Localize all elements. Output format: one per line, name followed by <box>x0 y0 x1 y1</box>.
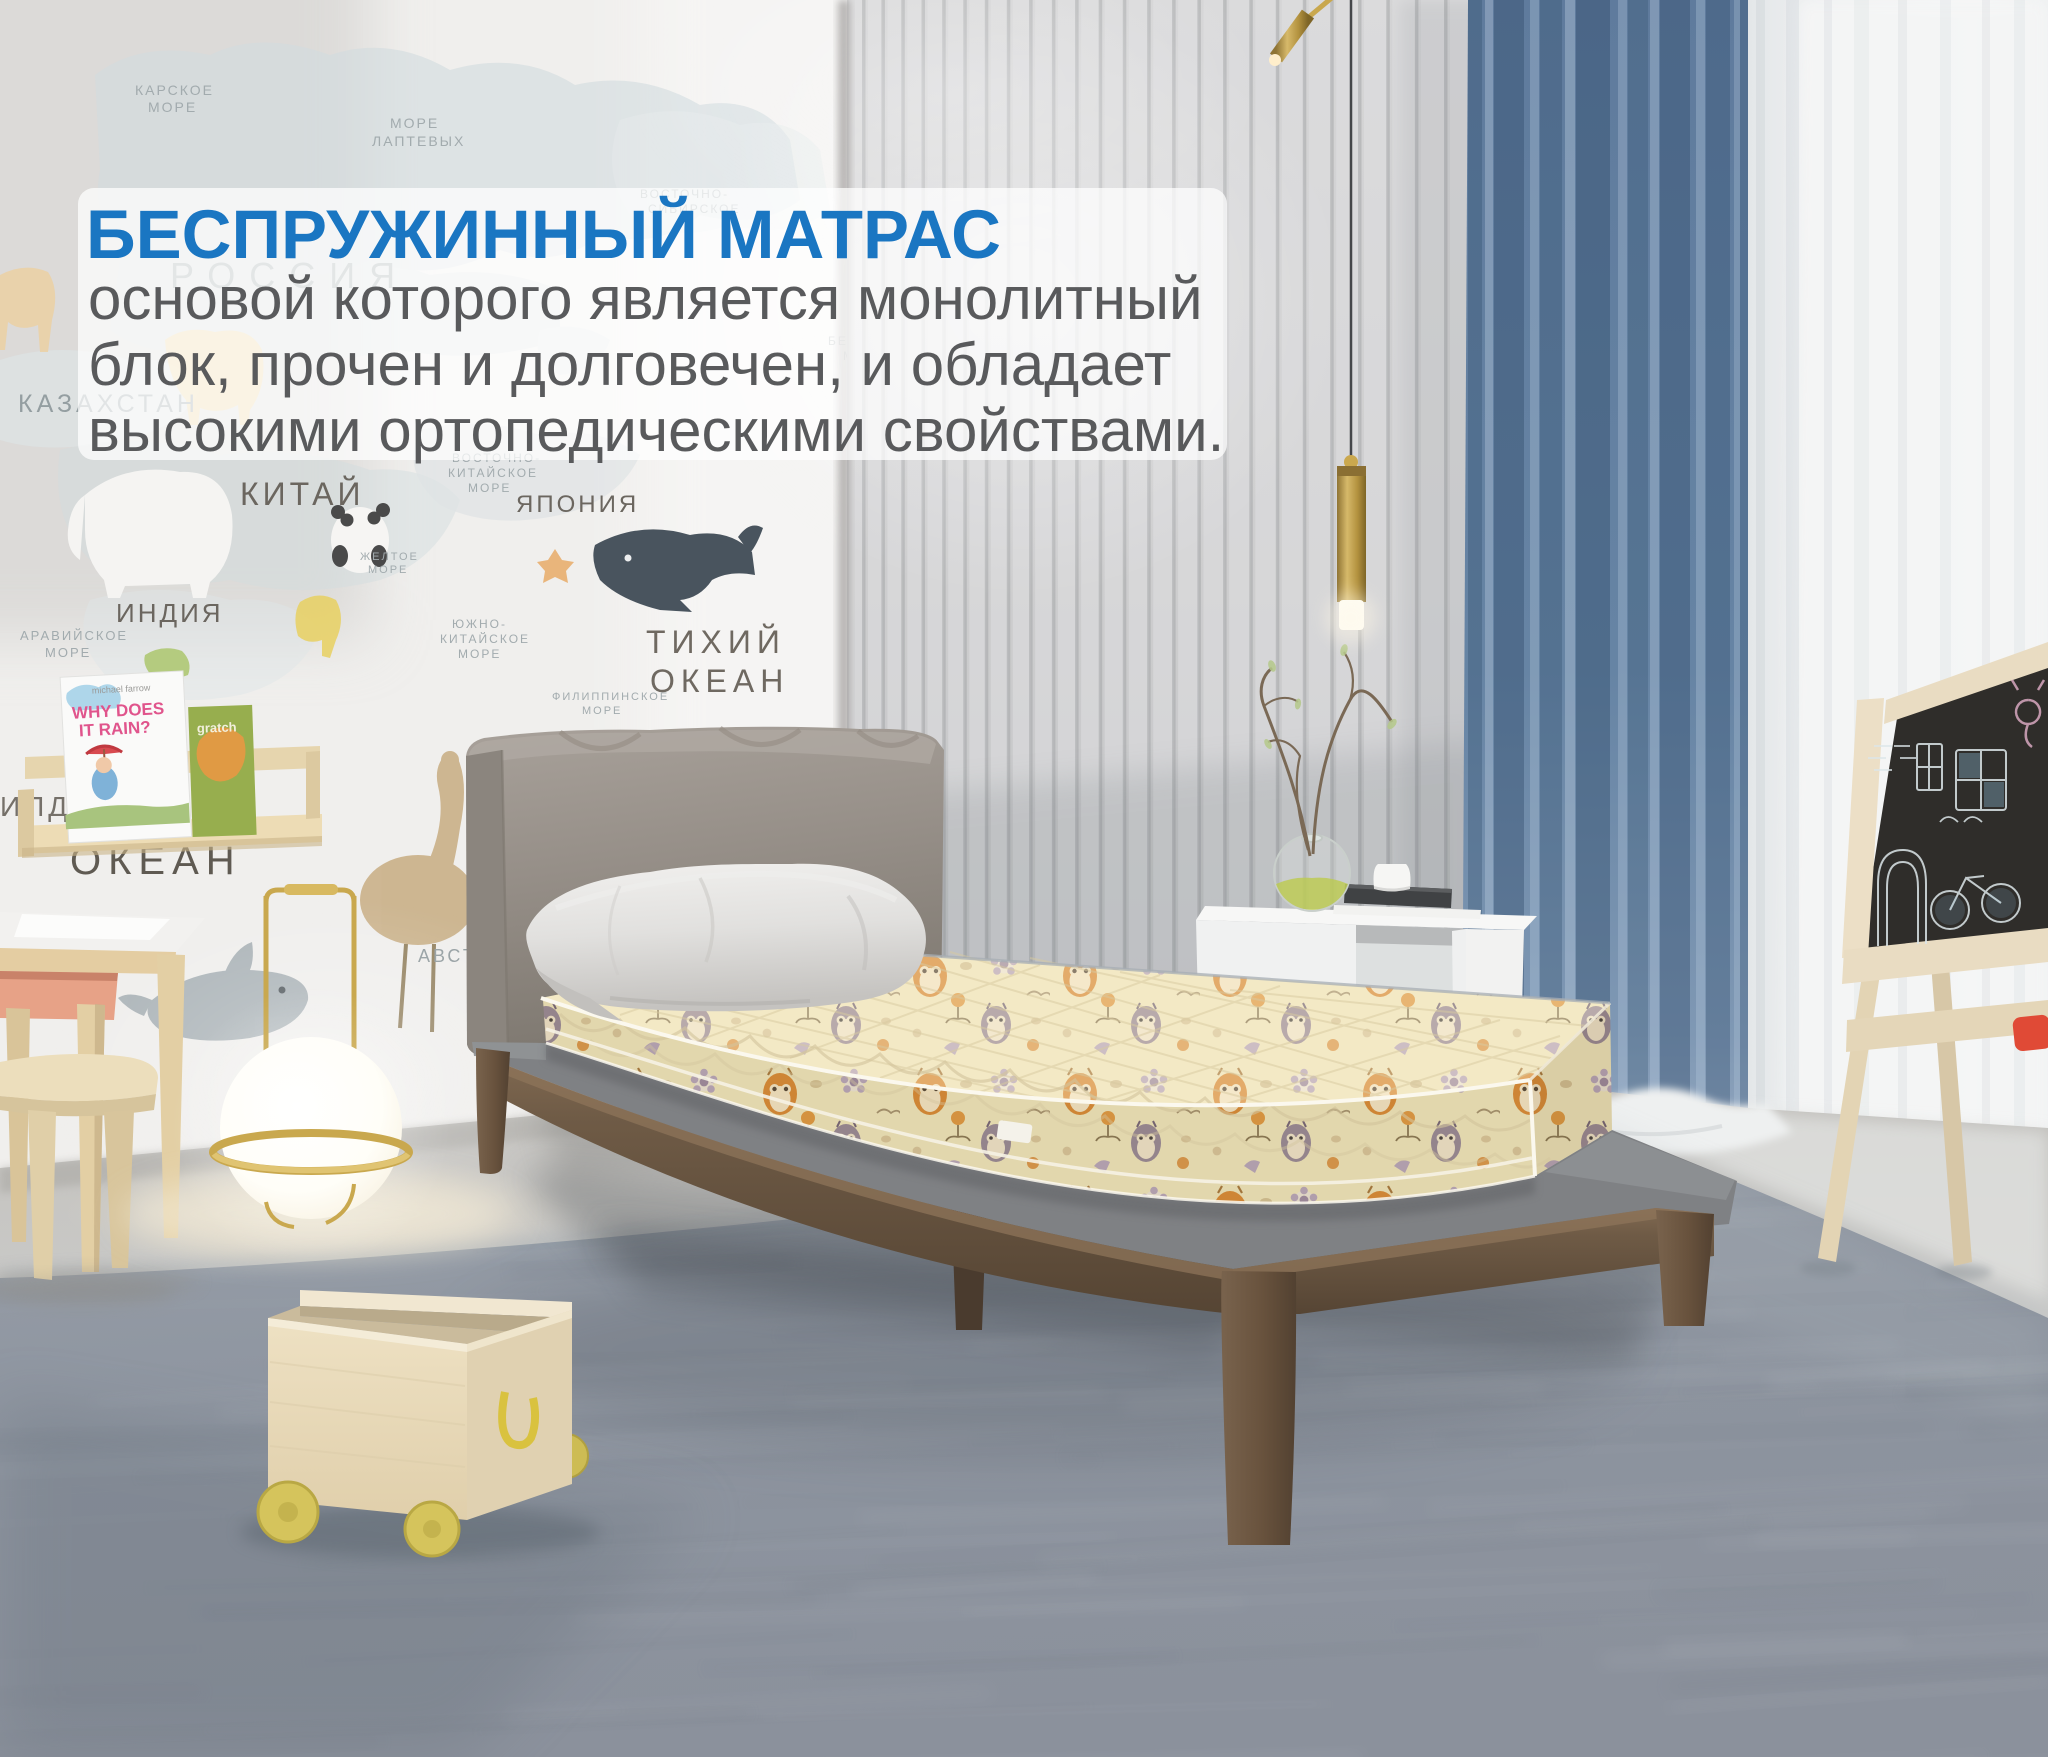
svg-text:МОРЕ: МОРЕ <box>390 115 439 131</box>
svg-text:ЮЖНО-: ЮЖНО- <box>452 617 507 631</box>
svg-text:МОРЕ: МОРЕ <box>148 99 197 115</box>
svg-text:КАРСКОЕ: КАРСКОЕ <box>135 82 214 98</box>
svg-text:БЕСПРУЖИННЫЙ МАТРАС: БЕСПРУЖИННЫЙ МАТРАС <box>86 195 1001 273</box>
svg-text:ОКЕАН: ОКЕАН <box>650 663 789 699</box>
svg-text:основой которого является моно: основой которого является монолитный <box>88 265 1203 332</box>
svg-text:АРАВИЙСКОЕ: АРАВИЙСКОЕ <box>20 628 128 643</box>
svg-text:ИНДИЯ: ИНДИЯ <box>116 598 224 628</box>
svg-text:КИТАЙ: КИТАЙ <box>240 476 364 512</box>
svg-text:gratch: gratch <box>197 719 237 735</box>
svg-text:КИТАЙСКОЕ: КИТАЙСКОЕ <box>440 631 530 646</box>
svg-text:МОРЕ: МОРЕ <box>582 705 622 717</box>
svg-text:IT RAIN?: IT RAIN? <box>78 718 151 741</box>
svg-text:МОРЕ: МОРЕ <box>45 645 91 660</box>
svg-text:ТИХИЙ: ТИХИЙ <box>646 624 786 660</box>
svg-text:ИПД: ИПД <box>0 791 71 822</box>
svg-text:ЛАПТЕВЫХ: ЛАПТЕВЫХ <box>372 133 465 149</box>
svg-text:МОРЕ: МОРЕ <box>468 481 511 495</box>
svg-text:ЯПОНИЯ: ЯПОНИЯ <box>516 491 639 518</box>
svg-text:ЖЕЛТОЕ: ЖЕЛТОЕ <box>360 551 419 563</box>
svg-text:блок, прочен и долговечен, и о: блок, прочен и долговечен, и обладает <box>88 331 1171 398</box>
svg-text:МОРЕ: МОРЕ <box>368 564 408 576</box>
svg-text:высокими ортопедическими свойс: высокими ортопедическими свойствами. <box>88 397 1224 464</box>
svg-text:МОРЕ: МОРЕ <box>458 647 501 661</box>
svg-text:КИТАЙСКОЕ: КИТАЙСКОЕ <box>448 465 538 480</box>
